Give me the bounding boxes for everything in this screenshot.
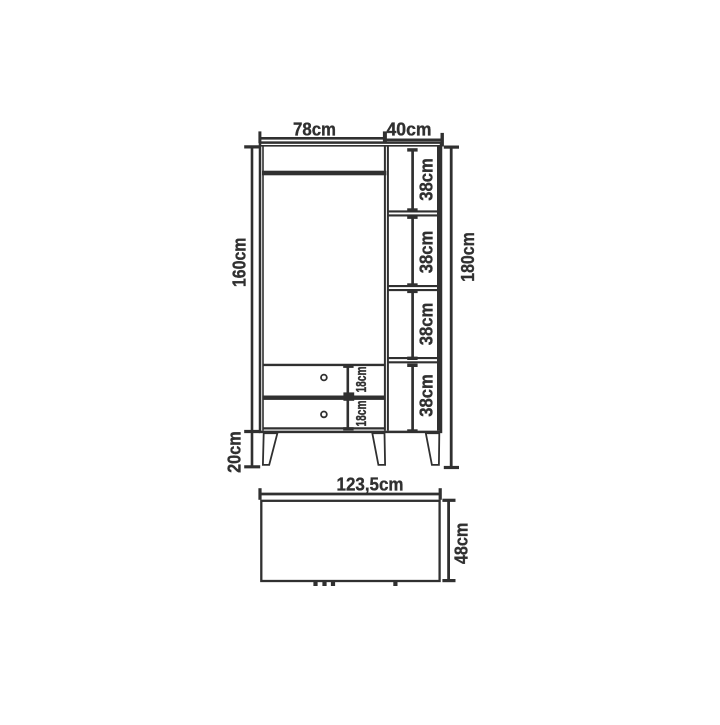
svg-text:123,5cm: 123,5cm <box>337 474 404 494</box>
svg-text:18cm: 18cm <box>354 367 370 393</box>
svg-text:18cm: 18cm <box>354 401 370 427</box>
svg-text:40cm: 40cm <box>387 120 432 140</box>
svg-text:48cm: 48cm <box>452 523 472 565</box>
svg-text:160cm: 160cm <box>229 238 249 288</box>
svg-text:20cm: 20cm <box>224 431 244 473</box>
svg-text:38cm: 38cm <box>417 158 437 201</box>
svg-text:38cm: 38cm <box>417 231 437 274</box>
svg-text:38cm: 38cm <box>417 374 437 417</box>
svg-text:38cm: 38cm <box>417 303 437 346</box>
svg-text:180cm: 180cm <box>458 232 478 282</box>
svg-text:78cm: 78cm <box>293 120 336 140</box>
